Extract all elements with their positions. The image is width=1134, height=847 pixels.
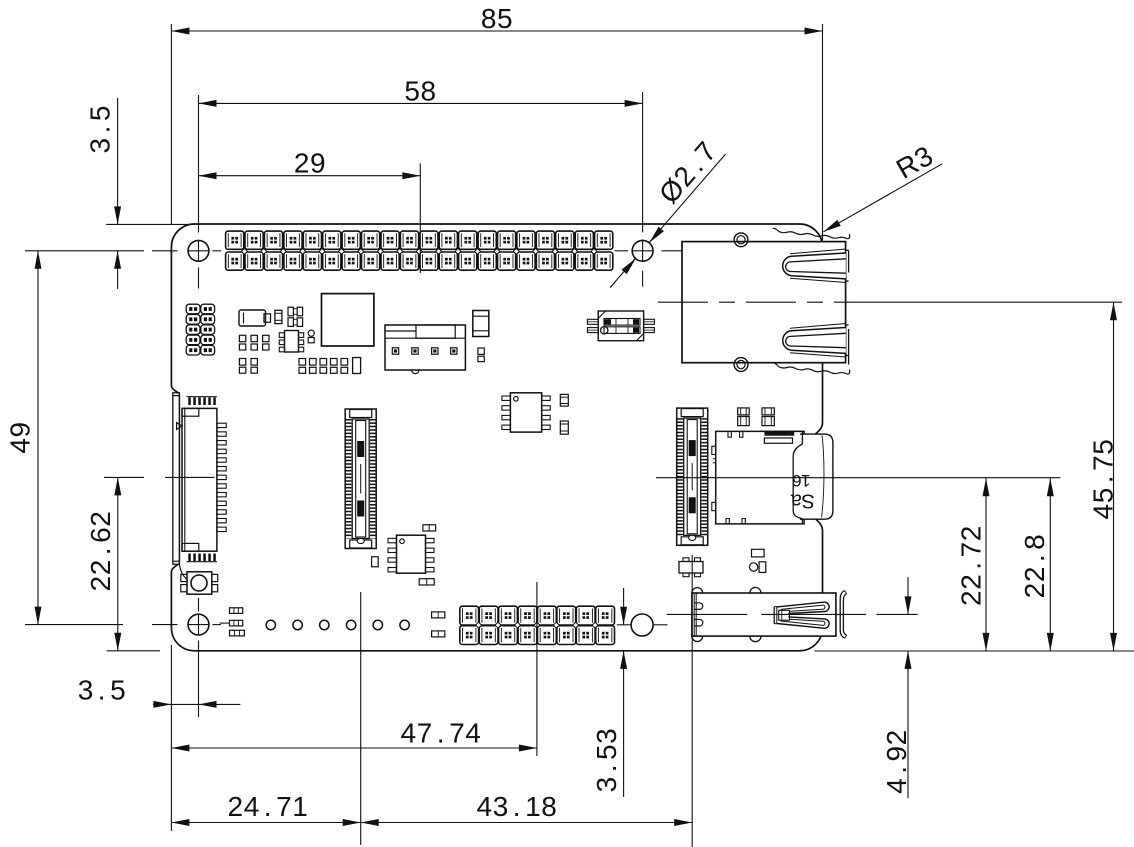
svg-text:Sa: Sa [790, 489, 815, 511]
svg-text:49: 49 [5, 421, 36, 453]
svg-text:3.5: 3.5 [78, 675, 127, 706]
svg-text:29: 29 [294, 148, 326, 179]
svg-text:47.74: 47.74 [401, 718, 482, 749]
svg-text:22.72: 22.72 [956, 525, 987, 606]
svg-text:24.71: 24.71 [228, 791, 309, 822]
svg-text:43.18: 43.18 [477, 791, 558, 822]
svg-text:4.92: 4.92 [881, 729, 912, 794]
svg-text:45.75: 45.75 [1088, 439, 1119, 520]
svg-text:22.62: 22.62 [85, 511, 116, 592]
svg-text:58: 58 [404, 76, 436, 107]
svg-text:16: 16 [793, 471, 811, 490]
svg-text:85: 85 [481, 3, 513, 34]
svg-text:3.5: 3.5 [85, 105, 116, 154]
svg-text:3.53: 3.53 [591, 728, 622, 793]
